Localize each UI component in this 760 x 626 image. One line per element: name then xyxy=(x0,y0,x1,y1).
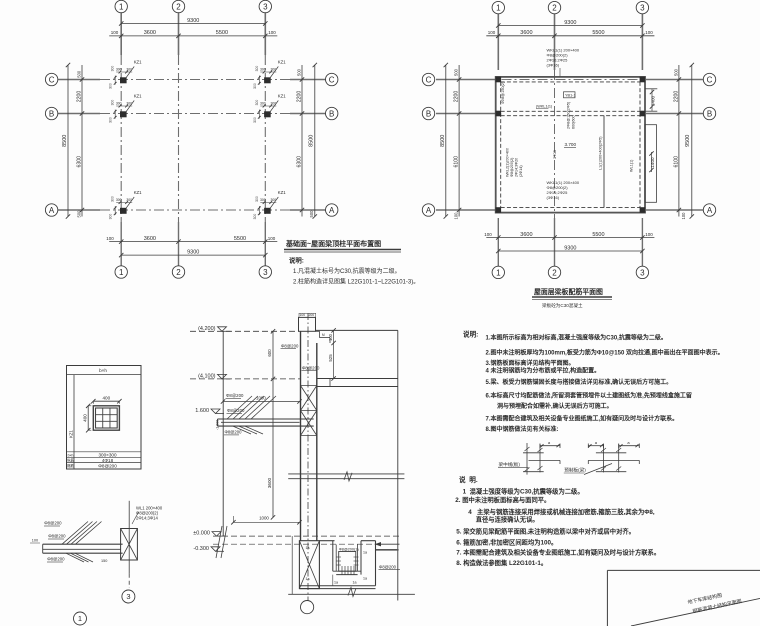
svg-text:3.700: 3.700 xyxy=(565,142,577,147)
svg-text:100: 100 xyxy=(645,30,653,35)
svg-text:b×h: b×h xyxy=(99,368,107,373)
svg-text:300: 300 xyxy=(270,102,276,106)
svg-text:300: 300 xyxy=(126,68,132,72)
svg-text:B: B xyxy=(426,109,431,118)
svg-text:525: 525 xyxy=(328,354,333,362)
svg-text:1.凡混凝土标号为C30,抗震等级为二级。: 1.凡混凝土标号为C30,抗震等级为二级。 xyxy=(293,267,401,275)
svg-text:300×300: 300×300 xyxy=(98,453,116,458)
svg-text:100: 100 xyxy=(32,539,38,543)
svg-text:KZ1: KZ1 xyxy=(278,94,286,99)
svg-text:KZ1: KZ1 xyxy=(278,60,286,65)
svg-text:3: 3 xyxy=(263,2,268,11)
svg-text:WL1(1): WL1(1) xyxy=(630,159,634,172)
svg-text:1: 1 xyxy=(119,2,124,11)
svg-text:WKL2(1)200×400: WKL2(1)200×400 xyxy=(506,148,510,177)
svg-text:9500: 9500 xyxy=(685,135,691,147)
svg-text:KZ1: KZ1 xyxy=(134,94,142,99)
svg-text:Φ8@200(2): Φ8@200(2) xyxy=(510,158,514,177)
svg-text:6.本标高尺寸均配筋做法,所留洞套管预埋件以土建图纸为准,先: 6.本标高尺寸均配筋做法,所留洞套管预埋件以土建图纸为准,先预埋线盒施工留 xyxy=(486,392,692,400)
svg-text:600|600: 600|600 xyxy=(572,115,576,129)
svg-text:A: A xyxy=(49,206,55,215)
svg-text:3600: 3600 xyxy=(144,236,156,242)
svg-text:300: 300 xyxy=(116,198,122,202)
svg-text:(WKL1(1): (WKL1(1) xyxy=(536,105,553,109)
svg-text:(3Φ16): (3Φ16) xyxy=(547,195,560,200)
svg-text:100: 100 xyxy=(484,232,492,237)
svg-text:纵筋: 纵筋 xyxy=(67,458,74,463)
svg-text:6100: 6100 xyxy=(454,156,460,168)
svg-text:7.本图需配合建筑及相关设备专业图纸施工,如有疑问及时与设计: 7.本图需配合建筑及相关设备专业图纸施工,如有疑问及时与设计方联系。 xyxy=(486,415,679,423)
svg-text:8500: 8500 xyxy=(440,135,446,147)
svg-text:3: 3 xyxy=(263,268,268,277)
svg-text:基础面~屋面梁顶柱平面布置图: 基础面~屋面梁顶柱平面布置图 xyxy=(285,239,381,248)
svg-text:3: 3 xyxy=(126,592,130,601)
svg-text:2: 2 xyxy=(176,2,181,11)
svg-text:1a: 1a xyxy=(306,546,310,550)
svg-text:300: 300 xyxy=(255,66,259,72)
svg-text:100: 100 xyxy=(681,212,686,220)
svg-text:300: 300 xyxy=(111,100,115,106)
svg-text:100: 100 xyxy=(328,333,333,341)
svg-text:1000: 1000 xyxy=(256,396,266,401)
svg-text:1: 1 xyxy=(119,268,124,277)
svg-text:8500: 8500 xyxy=(309,135,315,147)
svg-text:5. 梁交筋见梁配筋平面图,未注明构造筋以梁中对齐或居中对齐: 5. 梁交筋见梁配筋平面图,未注明构造筋以梁中对齐或居中对齐。 xyxy=(456,527,635,536)
svg-text:1a: 1a xyxy=(353,581,357,585)
svg-text:梁板砼为C30混凝土: 梁板砼为C30混凝土 xyxy=(542,302,583,309)
svg-text:300: 300 xyxy=(111,66,115,72)
svg-text:Φ8@200(1): Φ8@200(1) xyxy=(339,548,360,552)
svg-text:说明:: 说明: xyxy=(289,256,304,265)
svg-text:2200: 2200 xyxy=(673,91,679,103)
svg-text:9300: 9300 xyxy=(187,250,199,256)
svg-text:Φ8@200: Φ8@200 xyxy=(281,343,299,348)
svg-text:Φ8@200: Φ8@200 xyxy=(379,564,397,569)
svg-text:300: 300 xyxy=(109,117,113,123)
svg-text:100: 100 xyxy=(106,236,114,241)
svg-text:150: 150 xyxy=(101,559,107,563)
svg-text:2.图中未注明板厚均为100mm,板受力筋为Φ10@150: 2.图中未注明板厚均为100mm,板受力筋为Φ10@150 双向拉通,图中画出在… xyxy=(486,349,724,357)
svg-text:C: C xyxy=(329,75,335,84)
svg-text:KZ1: KZ1 xyxy=(134,60,142,65)
svg-text:A: A xyxy=(707,206,713,215)
svg-text:1a: 1a xyxy=(363,551,367,555)
svg-text:6100: 6100 xyxy=(673,156,679,168)
svg-text:说 明.: 说 明. xyxy=(459,475,478,484)
svg-text:2Φ8@150(2Φ5): 2Φ8@150(2Φ5) xyxy=(567,101,571,129)
svg-text:500: 500 xyxy=(296,68,301,76)
svg-text:4Φ8@150(2): 4Φ8@150(2) xyxy=(501,81,505,104)
svg-text:600: 600 xyxy=(267,349,272,357)
svg-text:5500: 5500 xyxy=(592,30,604,36)
svg-text:-0.300: -0.300 xyxy=(193,546,209,552)
svg-text:4 未注明钢筋均为分布筋或平拉,构造配置。: 4 未注明钢筋均为分布筋或平拉,构造配置。 xyxy=(486,366,601,374)
svg-text:500: 500 xyxy=(673,68,678,76)
svg-text:500: 500 xyxy=(76,210,81,218)
svg-text:Φ8@200: Φ8@200 xyxy=(302,365,320,370)
svg-text:B: B xyxy=(707,109,712,118)
svg-text:300: 300 xyxy=(270,198,276,202)
svg-text:300: 300 xyxy=(126,102,132,106)
svg-text:1a: 1a xyxy=(306,577,310,581)
svg-text:5.梁、板受力钢筋锚固长度与搭接做法详见标准,确认无误后方可: 5.梁、板受力钢筋锚固长度与搭接做法详见标准,确认无误后方可施工。 xyxy=(486,378,673,386)
svg-text:预制板(梁): 预制板(梁) xyxy=(564,467,586,474)
svg-text:300: 300 xyxy=(255,196,259,202)
svg-text:B: B xyxy=(329,109,334,118)
svg-text:3: 3 xyxy=(640,3,645,12)
svg-text:1000: 1000 xyxy=(259,516,269,521)
svg-text:C: C xyxy=(49,75,55,84)
svg-text:2200: 2200 xyxy=(296,91,302,103)
svg-text:1 混凝土强度等级为C30,抗震等级为二级。: 1 混凝土强度等级为C30,抗震等级为二级。 xyxy=(463,487,584,496)
svg-text:(3Φ16): (3Φ16) xyxy=(547,63,560,68)
svg-text:300: 300 xyxy=(255,100,259,106)
svg-text:洞与预埋配合如需补,确认无误后方可施工。: 洞与预埋配合如需补,确认无误后方可施工。 xyxy=(497,402,613,410)
svg-text:A: A xyxy=(329,206,335,215)
svg-text:2: 2 xyxy=(176,268,181,277)
svg-text:说明:: 说明: xyxy=(463,330,478,339)
svg-text:9300: 9300 xyxy=(187,18,199,24)
svg-text:4Φ18: 4Φ18 xyxy=(102,458,114,463)
svg-text:2.柱筋构造详见图集 L22G101-1~L22G101-3: 2.柱筋构造详见图集 L22G101-1~L22G101-3)。 xyxy=(293,278,419,286)
svg-text:C: C xyxy=(707,75,713,84)
svg-text:6. 箍筋加密,非加密区间距均为100。: 6. 箍筋加密,非加密区间距均为100。 xyxy=(456,537,557,546)
svg-text:300: 300 xyxy=(109,83,113,89)
svg-text:9300: 9300 xyxy=(564,20,576,26)
svg-text:1400: 1400 xyxy=(651,95,656,106)
svg-text:2: 2 xyxy=(552,268,557,277)
svg-text:100: 100 xyxy=(645,232,653,237)
svg-text:300: 300 xyxy=(260,198,266,202)
svg-text:Φ8@200: Φ8@200 xyxy=(98,463,117,468)
svg-text:1.600: 1.600 xyxy=(195,408,209,414)
svg-text:3700: 3700 xyxy=(552,149,557,159)
svg-text:2Φ14;3Φ20: 2Φ14;3Φ20 xyxy=(515,158,519,177)
svg-text:7. 本图需配合建筑及相关设备专业图纸施工,如有疑问及时与设: 7. 本图需配合建筑及相关设备专业图纸施工,如有疑问及时与设计方联系。 xyxy=(456,547,660,556)
svg-text:C: C xyxy=(426,75,432,84)
svg-text:Φ8@200: Φ8@200 xyxy=(47,557,65,562)
svg-text:300: 300 xyxy=(253,83,257,89)
svg-text:直径与连接确认无误。: 直径与连接确认无误。 xyxy=(476,514,539,523)
svg-text:8. 构造做法参图集 L22G101-1。: 8. 构造做法参图集 L22G101-1。 xyxy=(456,558,547,567)
svg-text:9300: 9300 xyxy=(564,246,576,252)
svg-text:2: 2 xyxy=(552,3,557,12)
svg-text:300: 300 xyxy=(109,214,113,220)
svg-text:2200: 2200 xyxy=(454,91,460,103)
svg-text:4 主梁与钢筋连接采用焊接或机械连接加密筋,箍筋三肢,其: 4 主梁与钢筋连接采用焊接或机械连接加密筋,箍筋三肢,其余为Φ8, xyxy=(468,507,655,516)
svg-text:M: M xyxy=(322,333,325,337)
svg-text:400: 400 xyxy=(83,414,88,422)
svg-text:100: 100 xyxy=(454,212,459,220)
svg-text:2200: 2200 xyxy=(76,91,82,103)
svg-text:300: 300 xyxy=(260,102,266,106)
svg-text:Φ8@200: Φ8@200 xyxy=(227,408,245,413)
svg-text:500: 500 xyxy=(76,70,81,78)
svg-text:3.钢筋板面标高详见结构平面图。: 3.钢筋板面标高详见结构平面图。 xyxy=(486,359,575,367)
svg-text:(2Φ14): (2Φ14) xyxy=(519,165,523,177)
svg-text:YB1-1: YB1-1 xyxy=(565,94,576,98)
svg-text:1a: 1a xyxy=(334,581,338,585)
svg-text:300: 300 xyxy=(111,196,115,202)
svg-text:5500: 5500 xyxy=(592,232,604,238)
svg-text:KZ1: KZ1 xyxy=(278,190,286,195)
svg-text:3600: 3600 xyxy=(267,477,272,488)
svg-text:5500: 5500 xyxy=(216,30,228,36)
svg-text:100: 100 xyxy=(488,30,496,35)
svg-text:A: A xyxy=(426,206,432,215)
svg-text:3600: 3600 xyxy=(144,30,156,36)
svg-text:100: 100 xyxy=(268,236,276,241)
svg-text:300: 300 xyxy=(260,68,266,72)
svg-text:3600: 3600 xyxy=(520,232,532,238)
svg-text:5500: 5500 xyxy=(234,236,246,242)
svg-text:6300: 6300 xyxy=(76,156,82,168)
svg-text:梁中线(板): 梁中线(板) xyxy=(499,461,521,468)
svg-text:300: 300 xyxy=(116,68,122,72)
svg-text:KZ1: KZ1 xyxy=(68,429,73,437)
svg-text:2. 图中未注明板面标高与面同平。: 2. 图中未注明板面标高与面同平。 xyxy=(455,495,550,504)
svg-text:Φ8@200: Φ8@200 xyxy=(225,430,243,435)
svg-text:B: B xyxy=(49,109,54,118)
svg-text:1: 1 xyxy=(496,3,501,12)
svg-text:100: 100 xyxy=(111,30,119,35)
svg-text:8500: 8500 xyxy=(62,135,68,147)
svg-text:300: 300 xyxy=(253,117,257,123)
svg-text:1: 1 xyxy=(496,268,501,277)
svg-text:300: 300 xyxy=(116,102,122,106)
svg-text:300: 300 xyxy=(126,198,132,202)
svg-text:400: 400 xyxy=(103,396,111,401)
svg-text:300: 300 xyxy=(270,68,276,72)
svg-text:3: 3 xyxy=(640,268,645,277)
svg-text:8.图中钢筋做法见有关标准:: 8.图中钢筋做法见有关标准: xyxy=(486,425,559,433)
svg-text:2Φ14;3Φ14: 2Φ14;3Φ14 xyxy=(136,516,158,521)
svg-text:箍筋: 箍筋 xyxy=(67,463,74,468)
svg-text:b×h: b×h xyxy=(68,453,74,457)
svg-text:屋面层梁板配筋平面图: 屋面层梁板配筋平面图 xyxy=(534,287,603,296)
svg-text:L1(1)200×400(2Φ5): L1(1)200×400(2Φ5) xyxy=(599,136,603,170)
svg-text:6300: 6300 xyxy=(296,156,302,168)
svg-text:1400: 1400 xyxy=(650,157,655,168)
svg-text:3600: 3600 xyxy=(520,30,532,36)
svg-text:500: 500 xyxy=(454,68,459,76)
svg-text:-1.600: -1.600 xyxy=(216,420,220,430)
svg-text:1.本图所示标高为相对标高,混凝土强度等级为C30,抗震等级: 1.本图所示标高为相对标高,混凝土强度等级为C30,抗震等级为二级。 xyxy=(486,334,667,342)
svg-text:500: 500 xyxy=(309,210,314,218)
svg-text:Φ8@200: Φ8@200 xyxy=(226,393,244,398)
svg-text:1a: 1a xyxy=(363,577,367,581)
svg-text:±0.000: ±0.000 xyxy=(193,531,210,537)
svg-text:100: 100 xyxy=(268,30,276,35)
svg-text:Φ8@200: Φ8@200 xyxy=(44,521,62,526)
svg-text:1: 1 xyxy=(78,614,82,623)
svg-text:300: 300 xyxy=(253,214,257,220)
svg-text:Φ8@200: Φ8@200 xyxy=(48,534,66,539)
svg-text:KZ1: KZ1 xyxy=(134,190,142,195)
